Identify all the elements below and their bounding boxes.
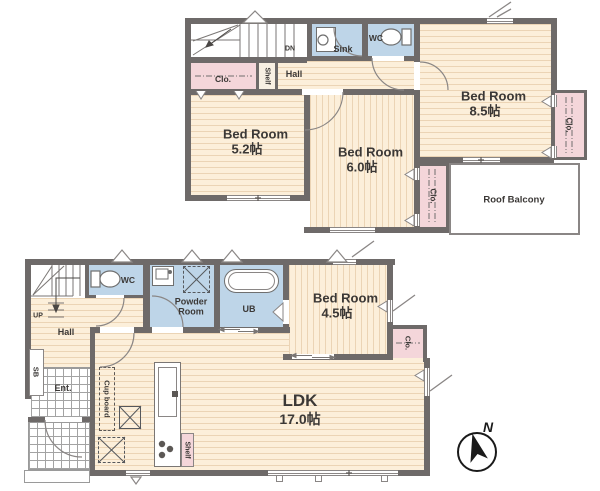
closet-label: Clo. — [565, 117, 574, 132]
hall-label: Hall — [58, 327, 75, 337]
bedroom-4-5-label: Bed Room 4.5帖 — [313, 291, 361, 322]
wc-label: WC — [121, 275, 135, 285]
shoe-box-label: SB — [32, 367, 41, 377]
vanity-basin-icon — [156, 269, 172, 279]
stairs-down-label: DN — [285, 46, 295, 53]
entrance-label: Ent. — [55, 383, 72, 393]
shelf-label: Shelf — [184, 441, 191, 458]
sliding-door-marks — [219, 328, 335, 360]
room-name: Bed Room — [223, 127, 271, 142]
stairs-2f-treads — [191, 24, 294, 57]
closet-label: Clo. — [429, 188, 438, 203]
sink-icon-2f — [318, 35, 328, 45]
room-size: 17.0帖 — [279, 411, 320, 427]
toilet-icon-1f — [91, 271, 120, 287]
room-name: Bed Room — [338, 145, 386, 160]
powder-room-label: Powder Room — [165, 297, 217, 318]
toilet-icon-2f — [381, 29, 411, 45]
compass-north-label: N — [483, 419, 493, 435]
unit-bath-label: UB — [243, 304, 256, 314]
ldk-label: LDK 17.0帖 — [279, 391, 320, 427]
room-size: 6.0帖 — [338, 160, 386, 175]
wc-label: WC — [369, 33, 383, 43]
washer-x-mark — [184, 267, 209, 292]
bedroom-6-0-label: Bed Room 6.0帖 — [338, 145, 386, 176]
sink-label: Sink — [333, 44, 352, 54]
stove-burners-icon — [159, 441, 173, 458]
room-name: Bed Room — [313, 291, 361, 306]
room-name: Bed Room — [461, 89, 509, 104]
room-size: 8.5帖 — [461, 104, 509, 119]
hall-label: Hall — [286, 69, 303, 79]
cupboard-label: Cup board — [103, 380, 112, 418]
room-size: 5.2帖 — [223, 142, 271, 157]
room-size: 4.5帖 — [313, 306, 361, 321]
bedroom-8-5-label: Bed Room 8.5帖 — [461, 89, 509, 120]
folding-door-marks — [196, 91, 244, 99]
room-name: LDK — [279, 391, 320, 411]
bedroom-5-2-label: Bed Room 5.2帖 — [223, 127, 271, 158]
shelf-label: Shelf — [264, 67, 271, 84]
stairs-up-label: UP — [33, 313, 43, 320]
window-plus-marks — [255, 157, 484, 476]
closet-label: Clo. — [404, 336, 413, 350]
floor-plan: DN Clo. Shelf Hall Sink WC Bed Room 8.5帖… — [0, 0, 600, 491]
closet-label: Clo. — [215, 74, 231, 84]
roof-balcony-label: Roof Balcony — [483, 195, 544, 206]
compass-icon — [458, 431, 496, 471]
